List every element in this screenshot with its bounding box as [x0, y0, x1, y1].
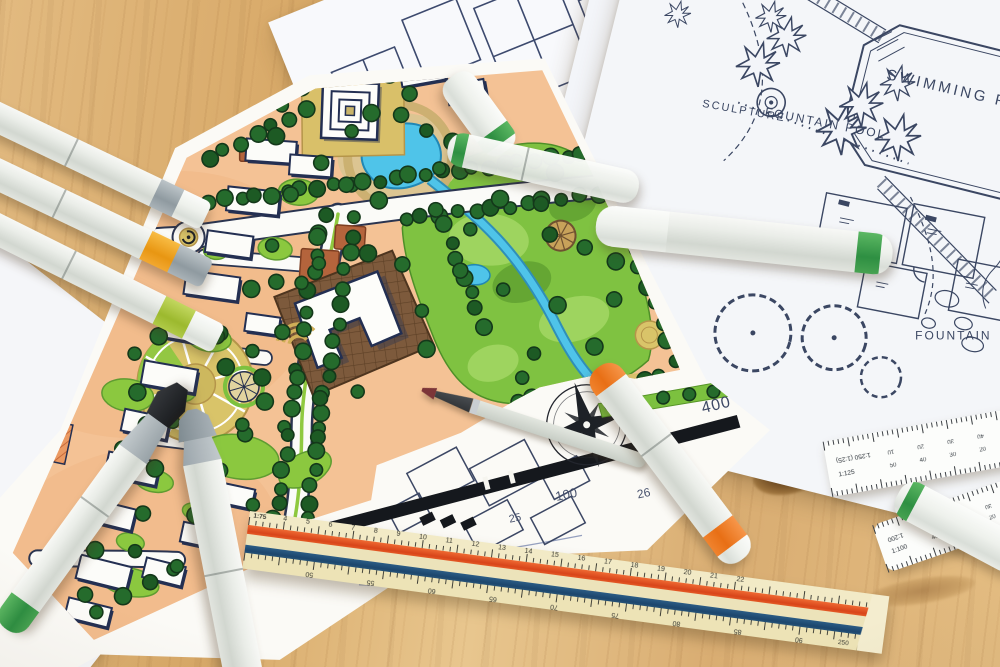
- desk-scene: SCULPTURE: [0, 0, 1000, 667]
- ruler-scale-label: 1:250 (1:25): [835, 451, 871, 464]
- sculpture-mid-label: SCULPTURE: [701, 98, 786, 125]
- dim-100: 100: [554, 485, 578, 504]
- ruler-scale-label: 1:200: [887, 531, 905, 543]
- dim-25: 25: [508, 511, 522, 525]
- ruler-scale-label: 1:125: [838, 469, 855, 479]
- fountain-edge-label: FOUNTAIN: [915, 328, 991, 342]
- ruler-end-label: 250: [837, 639, 849, 647]
- swimming-pool-label: SWIMMING POOL: [885, 66, 1000, 120]
- blueprint-labels: SWIMMING POOL PAVILION FOUNTAIN POOL SCU…: [658, 0, 1000, 375]
- dim-26: 26: [636, 485, 652, 502]
- ruler-scale-label: 1:100: [891, 543, 909, 555]
